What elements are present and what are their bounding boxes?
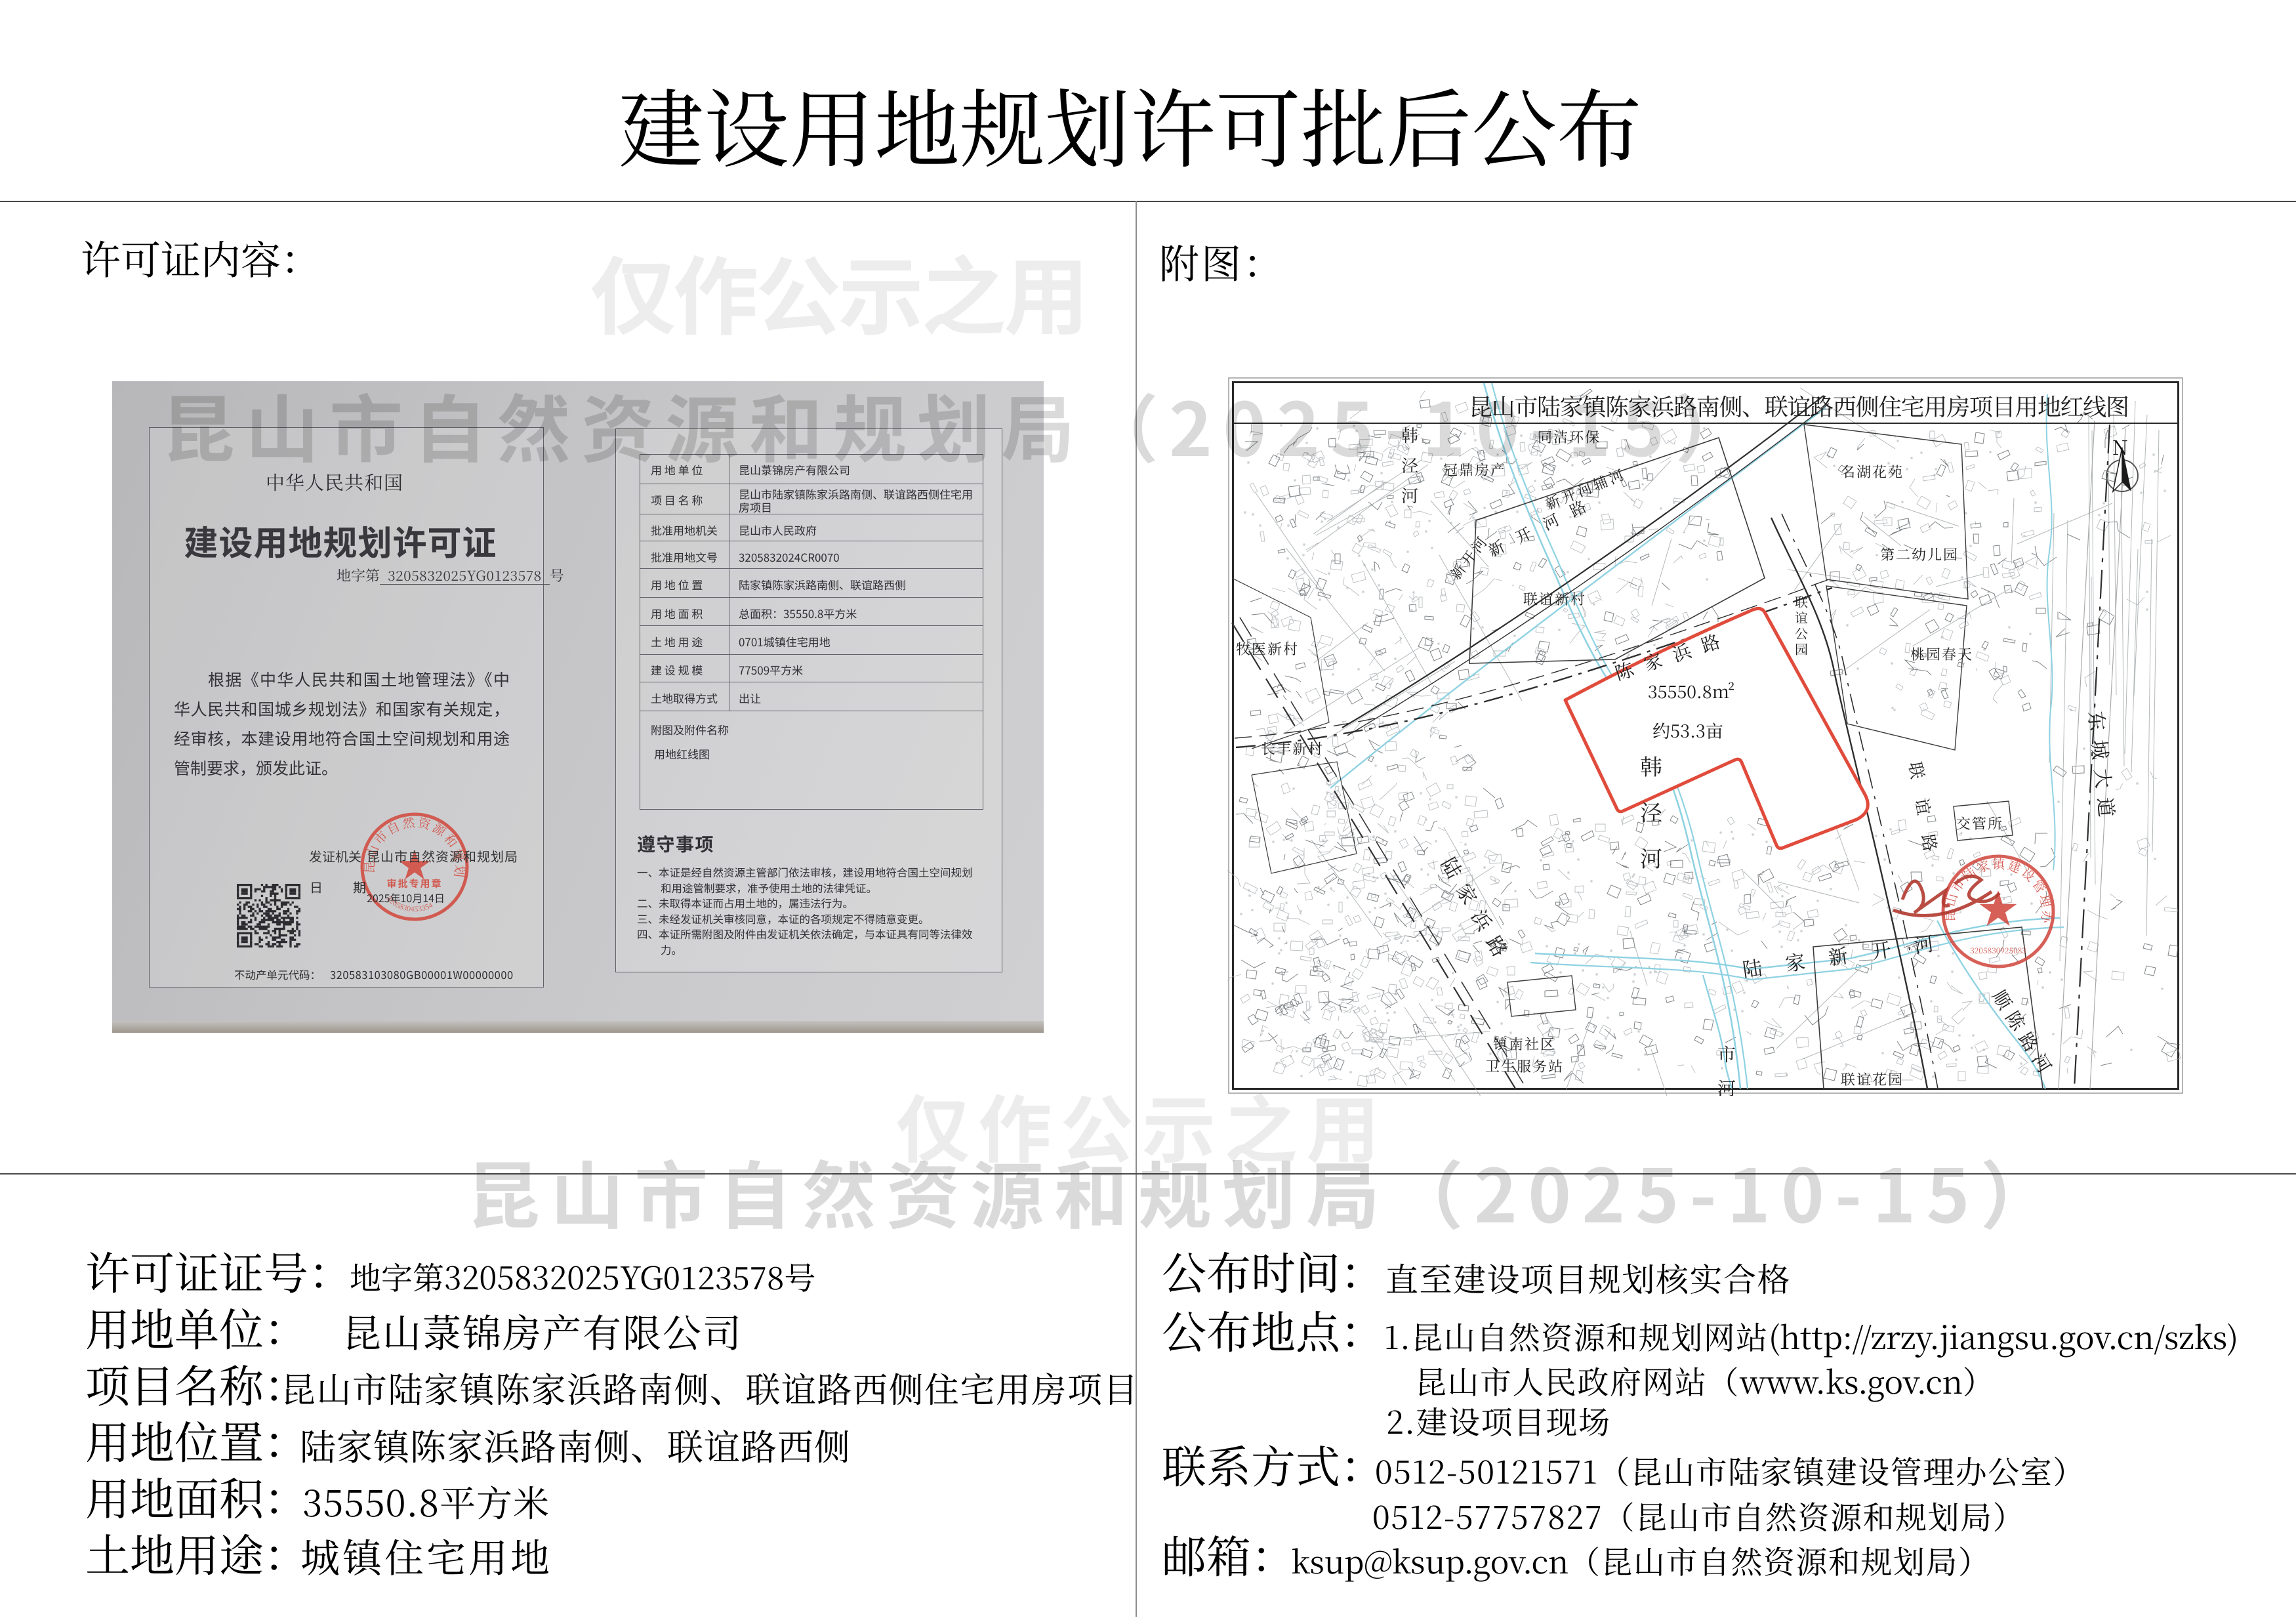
svg-text:审批专用章: 审批专用章	[386, 877, 442, 890]
svg-text:牧医新村: 牧医新村	[1236, 638, 1299, 659]
svg-text:联谊新村: 联谊新村	[1523, 589, 1586, 609]
svg-text:N: N	[2112, 432, 2128, 461]
svg-text:河: 河	[1640, 841, 1662, 873]
svg-text:约53.3亩: 约53.3亩	[1652, 717, 1723, 743]
svg-text:同洁环保: 同洁环保	[1538, 426, 1601, 447]
svg-text:第二幼儿园: 第二幼儿园	[1880, 544, 1959, 564]
svg-text:3205830925083: 3205830925083	[1970, 945, 2026, 956]
svg-text:河: 河	[1401, 483, 1418, 507]
svg-text:韩: 韩	[1640, 749, 1662, 781]
svg-text:交管所: 交管所	[1956, 813, 2003, 833]
svg-text:名湖花苑: 名湖花苑	[1841, 461, 1904, 482]
svg-text:市: 市	[1717, 1041, 1736, 1067]
svg-text:昆山市陆家镇陈家浜路南侧、联谊路西侧住宅用房项目用地红线图: 昆山市陆家镇陈家浜路南侧、联谊路西侧住宅用房项目用地红线图	[1469, 389, 2129, 423]
svg-text:冠鼎房产: 冠鼎房产	[1443, 459, 1506, 480]
svg-text:桃园春天: 桃园春天	[1910, 644, 1973, 664]
svg-text:联谊花园: 联谊花园	[1841, 1069, 1904, 1089]
svg-text:长丰新村: 长丰新村	[1261, 738, 1324, 759]
svg-text:泾: 泾	[1401, 453, 1418, 477]
svg-text:35550.8m²: 35550.8m²	[1648, 678, 1734, 703]
svg-text:卫生服务站: 卫生服务站	[1485, 1056, 1564, 1076]
svg-text:韩: 韩	[1401, 423, 1418, 447]
svg-text:泾: 泾	[1640, 795, 1662, 827]
svg-text:镇南社区: 镇南社区	[1493, 1033, 1556, 1054]
svg-text:河: 河	[1717, 1075, 1736, 1096]
svg-text:园: 园	[1795, 639, 1808, 658]
